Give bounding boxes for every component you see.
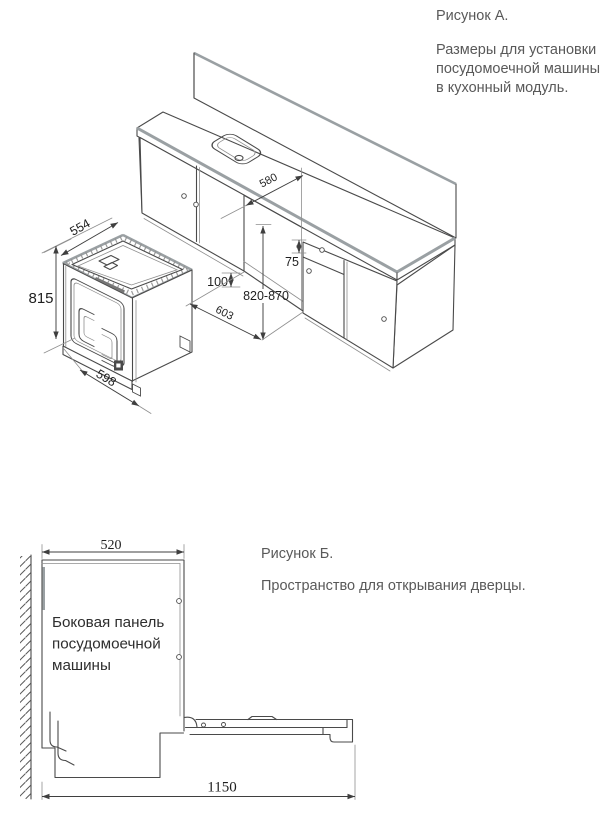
dim-label-panel-520: 520 [101,538,122,553]
door-edge-profile [323,720,353,743]
side-panel-label-line3: машины [52,657,111,674]
figure-b-title: Рисунок Б. [261,545,333,564]
screw-icon [382,317,387,322]
dim-label-depth-554: 554 [68,216,93,238]
screw-icon [320,248,325,253]
hinge-bracket [58,721,74,765]
dim-label-niche-height-820-870: 820-870 [243,289,289,303]
text-line: в кухонный модуль. [436,79,600,98]
leveling-foot [133,384,141,396]
wall-hatch [20,556,31,799]
machine-base-profile [42,712,184,778]
dim-label-height-815: 815 [28,290,53,307]
figure-a-title: Рисунок А. [436,7,508,26]
text-line: посудомоечной машины [436,60,600,79]
wall [20,555,31,799]
manual-page: 554 815 598 580 75 [0,0,616,815]
hinge-pin [222,723,226,727]
dim-label-niche-width-603: 603 [213,304,235,323]
dim-label-plinth-100: 100 [207,275,228,289]
screw-icon [177,655,182,660]
figure-b-description: Пространство для открывания дверцы. [261,577,526,596]
figure-a-description: Размеры для установки посудомоечной маши… [436,41,600,98]
hinge-pin [202,723,206,727]
side-panel-label-line2: посудомоечной [52,636,161,653]
dishwasher-side-panel: Боковая панель посудомоечной машины [42,560,184,748]
figure-a-kitchen-module: 554 815 598 580 75 [28,53,456,414]
door-hinge [184,717,197,727]
opened-door [184,717,353,743]
screw-icon [177,599,182,604]
text-line: Размеры для установки [436,41,600,60]
dim-label-clearance-1150: 1150 [207,780,236,796]
screw-icon [307,269,312,274]
screw-icon [182,194,187,199]
screw-icon [194,202,199,207]
installation-drawings: 554 815 598 580 75 [0,0,616,815]
side-panel-label-line1: Боковая панель [52,614,164,631]
dim-label-gap-75: 75 [285,255,299,269]
